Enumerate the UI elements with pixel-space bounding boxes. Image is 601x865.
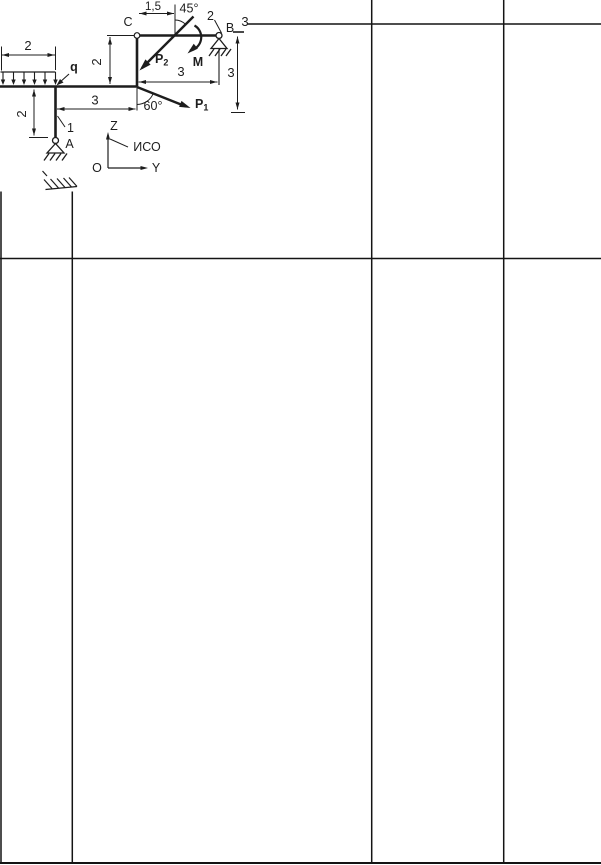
support-a-triangle <box>47 144 64 154</box>
member-2-leader <box>215 20 222 33</box>
dim-span-c-b-label: 3 <box>177 64 184 79</box>
joint-c-marker <box>134 33 140 39</box>
support-b-hatch <box>209 49 231 56</box>
point-b-label: B <box>226 21 234 35</box>
dimension-load-width: 2 <box>2 38 56 71</box>
scanned-worksheet-page: q <box>0 0 601 865</box>
point-a-label: A <box>65 137 74 151</box>
axis-y-label: Y <box>152 161 161 175</box>
worksheet-canvas: q <box>0 0 601 865</box>
dim-height-b-label: 3 <box>227 65 234 80</box>
dimension-height-b: 3 <box>227 32 245 113</box>
moment-arrow: M <box>188 26 204 70</box>
support-a-hatch <box>44 154 67 161</box>
dim-col-c-height-label: 2 <box>89 58 104 65</box>
axis-origin-label: O <box>92 161 102 175</box>
member-1-leader <box>58 116 66 127</box>
load-label: q <box>70 60 78 74</box>
moment-label: M <box>193 55 203 69</box>
variant-number-label: 3 <box>241 14 248 29</box>
dim-offset-c-p2-label: 1,5 <box>145 1 161 13</box>
dim-col-a-height-label: 2 <box>14 110 29 117</box>
axes-note-leader <box>110 139 128 147</box>
ground-hatch-fragment <box>43 171 78 190</box>
force-p1-arrowhead <box>179 101 190 108</box>
axis-z-arrowhead <box>106 132 110 140</box>
dimension-col-c-height: 2 <box>89 36 134 85</box>
frame-diagram: q <box>0 1 249 190</box>
angle-45-arc <box>175 20 186 24</box>
axis-z-label: Z <box>110 119 118 133</box>
member-2-label: 2 <box>207 9 214 23</box>
pin-support-a-icon <box>44 138 67 161</box>
member-2-callout: 2 <box>207 9 221 33</box>
support-b-triangle <box>211 39 227 49</box>
member-1-callout: 1 <box>58 116 75 135</box>
point-c-label: C <box>123 15 132 29</box>
moment-arrowhead <box>188 44 198 54</box>
dimension-offset-c-p2: 1,5 <box>139 1 175 34</box>
axes-note-label: ИСО <box>133 140 161 154</box>
angle-45-label: 45° <box>180 2 199 16</box>
distributed-load: q <box>1 60 78 86</box>
dimension-span-c-b: 3 <box>139 64 218 84</box>
dim-load-width-label: 2 <box>24 38 31 53</box>
angle-60-label: 60° <box>144 99 163 113</box>
dim-span-a-c-label: 3 <box>91 93 98 108</box>
dimension-col-a-height: 2 <box>14 90 48 138</box>
load-arrows-icon <box>1 72 58 85</box>
member-1-label: 1 <box>67 121 74 135</box>
force-p2-label: P2 <box>155 52 168 68</box>
coordinate-axes: Z Y O ИСО <box>92 119 161 175</box>
hatch-stray-tick <box>43 171 48 176</box>
table-grid <box>0 0 601 864</box>
dimension-span-a-c: 3 <box>57 88 137 111</box>
axis-y-arrowhead <box>141 166 149 170</box>
force-p1-label: P1 <box>195 97 208 113</box>
force-p1: 60° P1 <box>137 87 208 113</box>
